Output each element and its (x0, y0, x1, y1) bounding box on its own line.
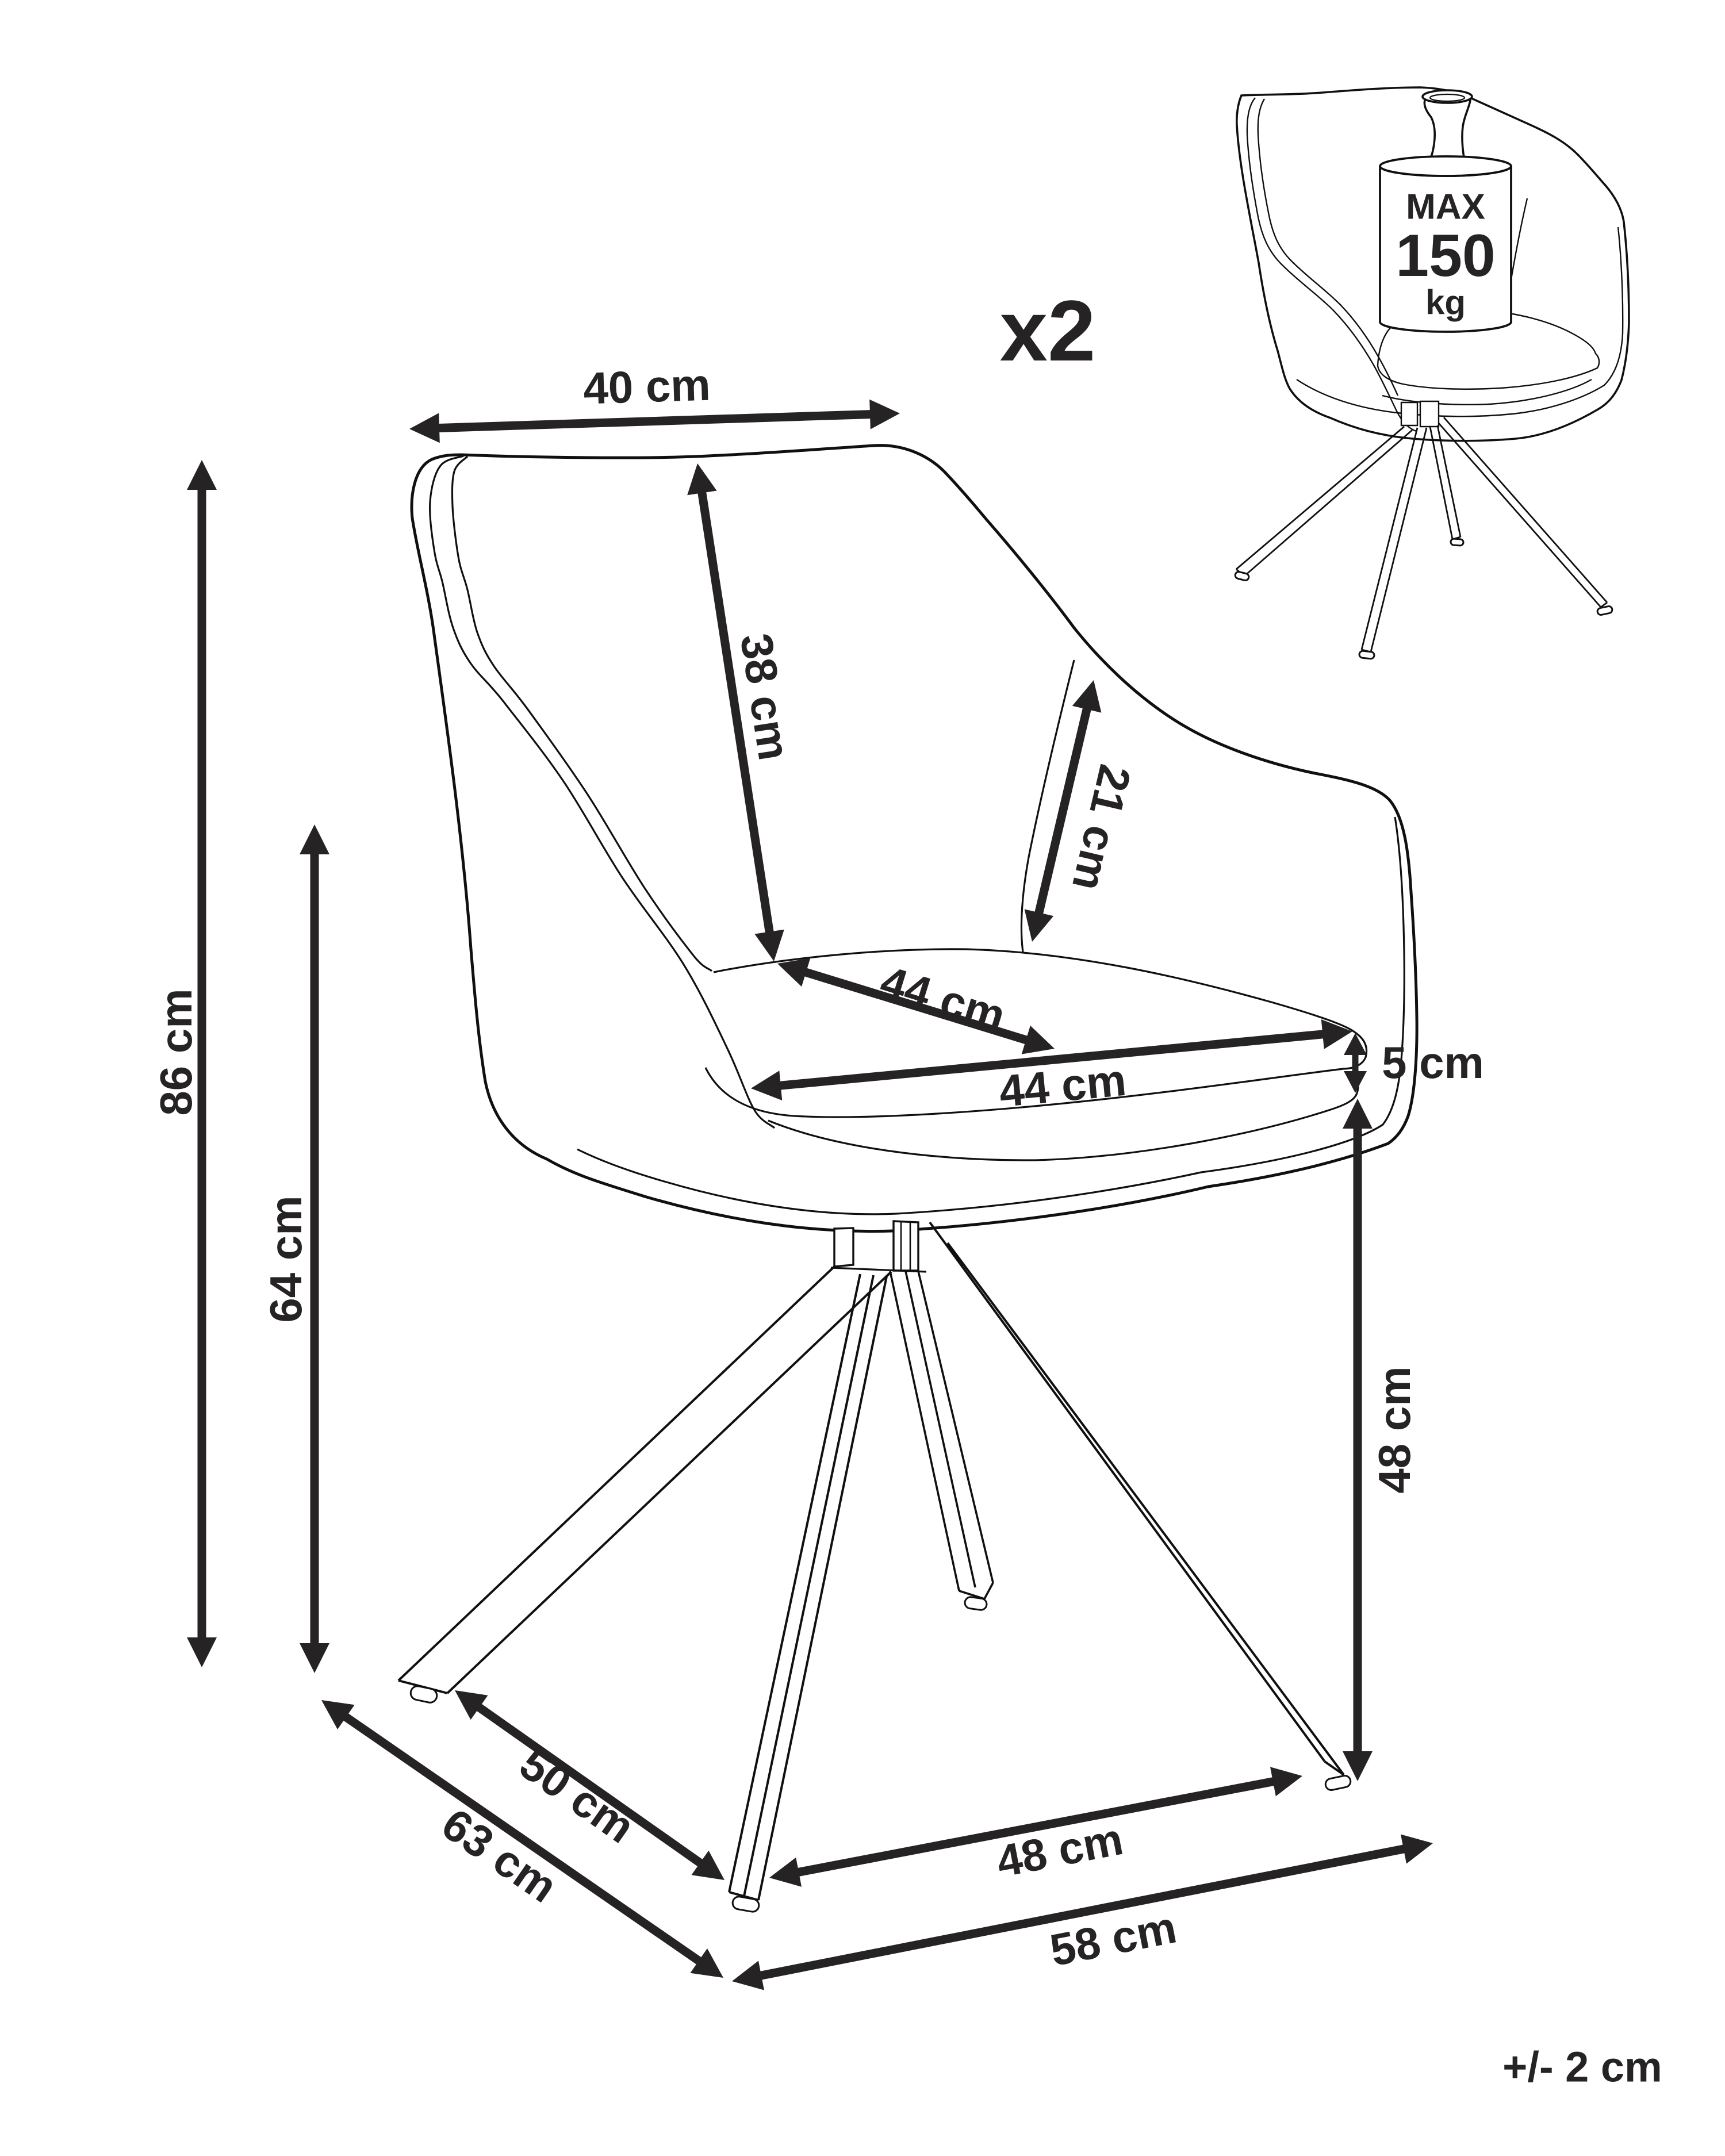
svg-text:150: 150 (1396, 222, 1496, 289)
svg-text:+/- 2 cm: +/- 2 cm (1502, 2043, 1662, 2091)
svg-text:64 cm: 64 cm (260, 1195, 311, 1322)
svg-text:kg: kg (1425, 283, 1466, 322)
svg-text:x2: x2 (1000, 282, 1096, 379)
svg-text:40 cm: 40 cm (582, 359, 711, 414)
svg-text:48 cm: 48 cm (992, 1813, 1127, 1887)
svg-text:5 cm: 5 cm (1382, 1037, 1484, 1088)
svg-text:MAX: MAX (1406, 187, 1485, 227)
svg-text:48 cm: 48 cm (1369, 1366, 1420, 1493)
svg-text:44 cm: 44 cm (875, 956, 1011, 1041)
svg-text:50 cm: 50 cm (511, 1738, 644, 1852)
svg-text:86 cm: 86 cm (151, 988, 201, 1115)
